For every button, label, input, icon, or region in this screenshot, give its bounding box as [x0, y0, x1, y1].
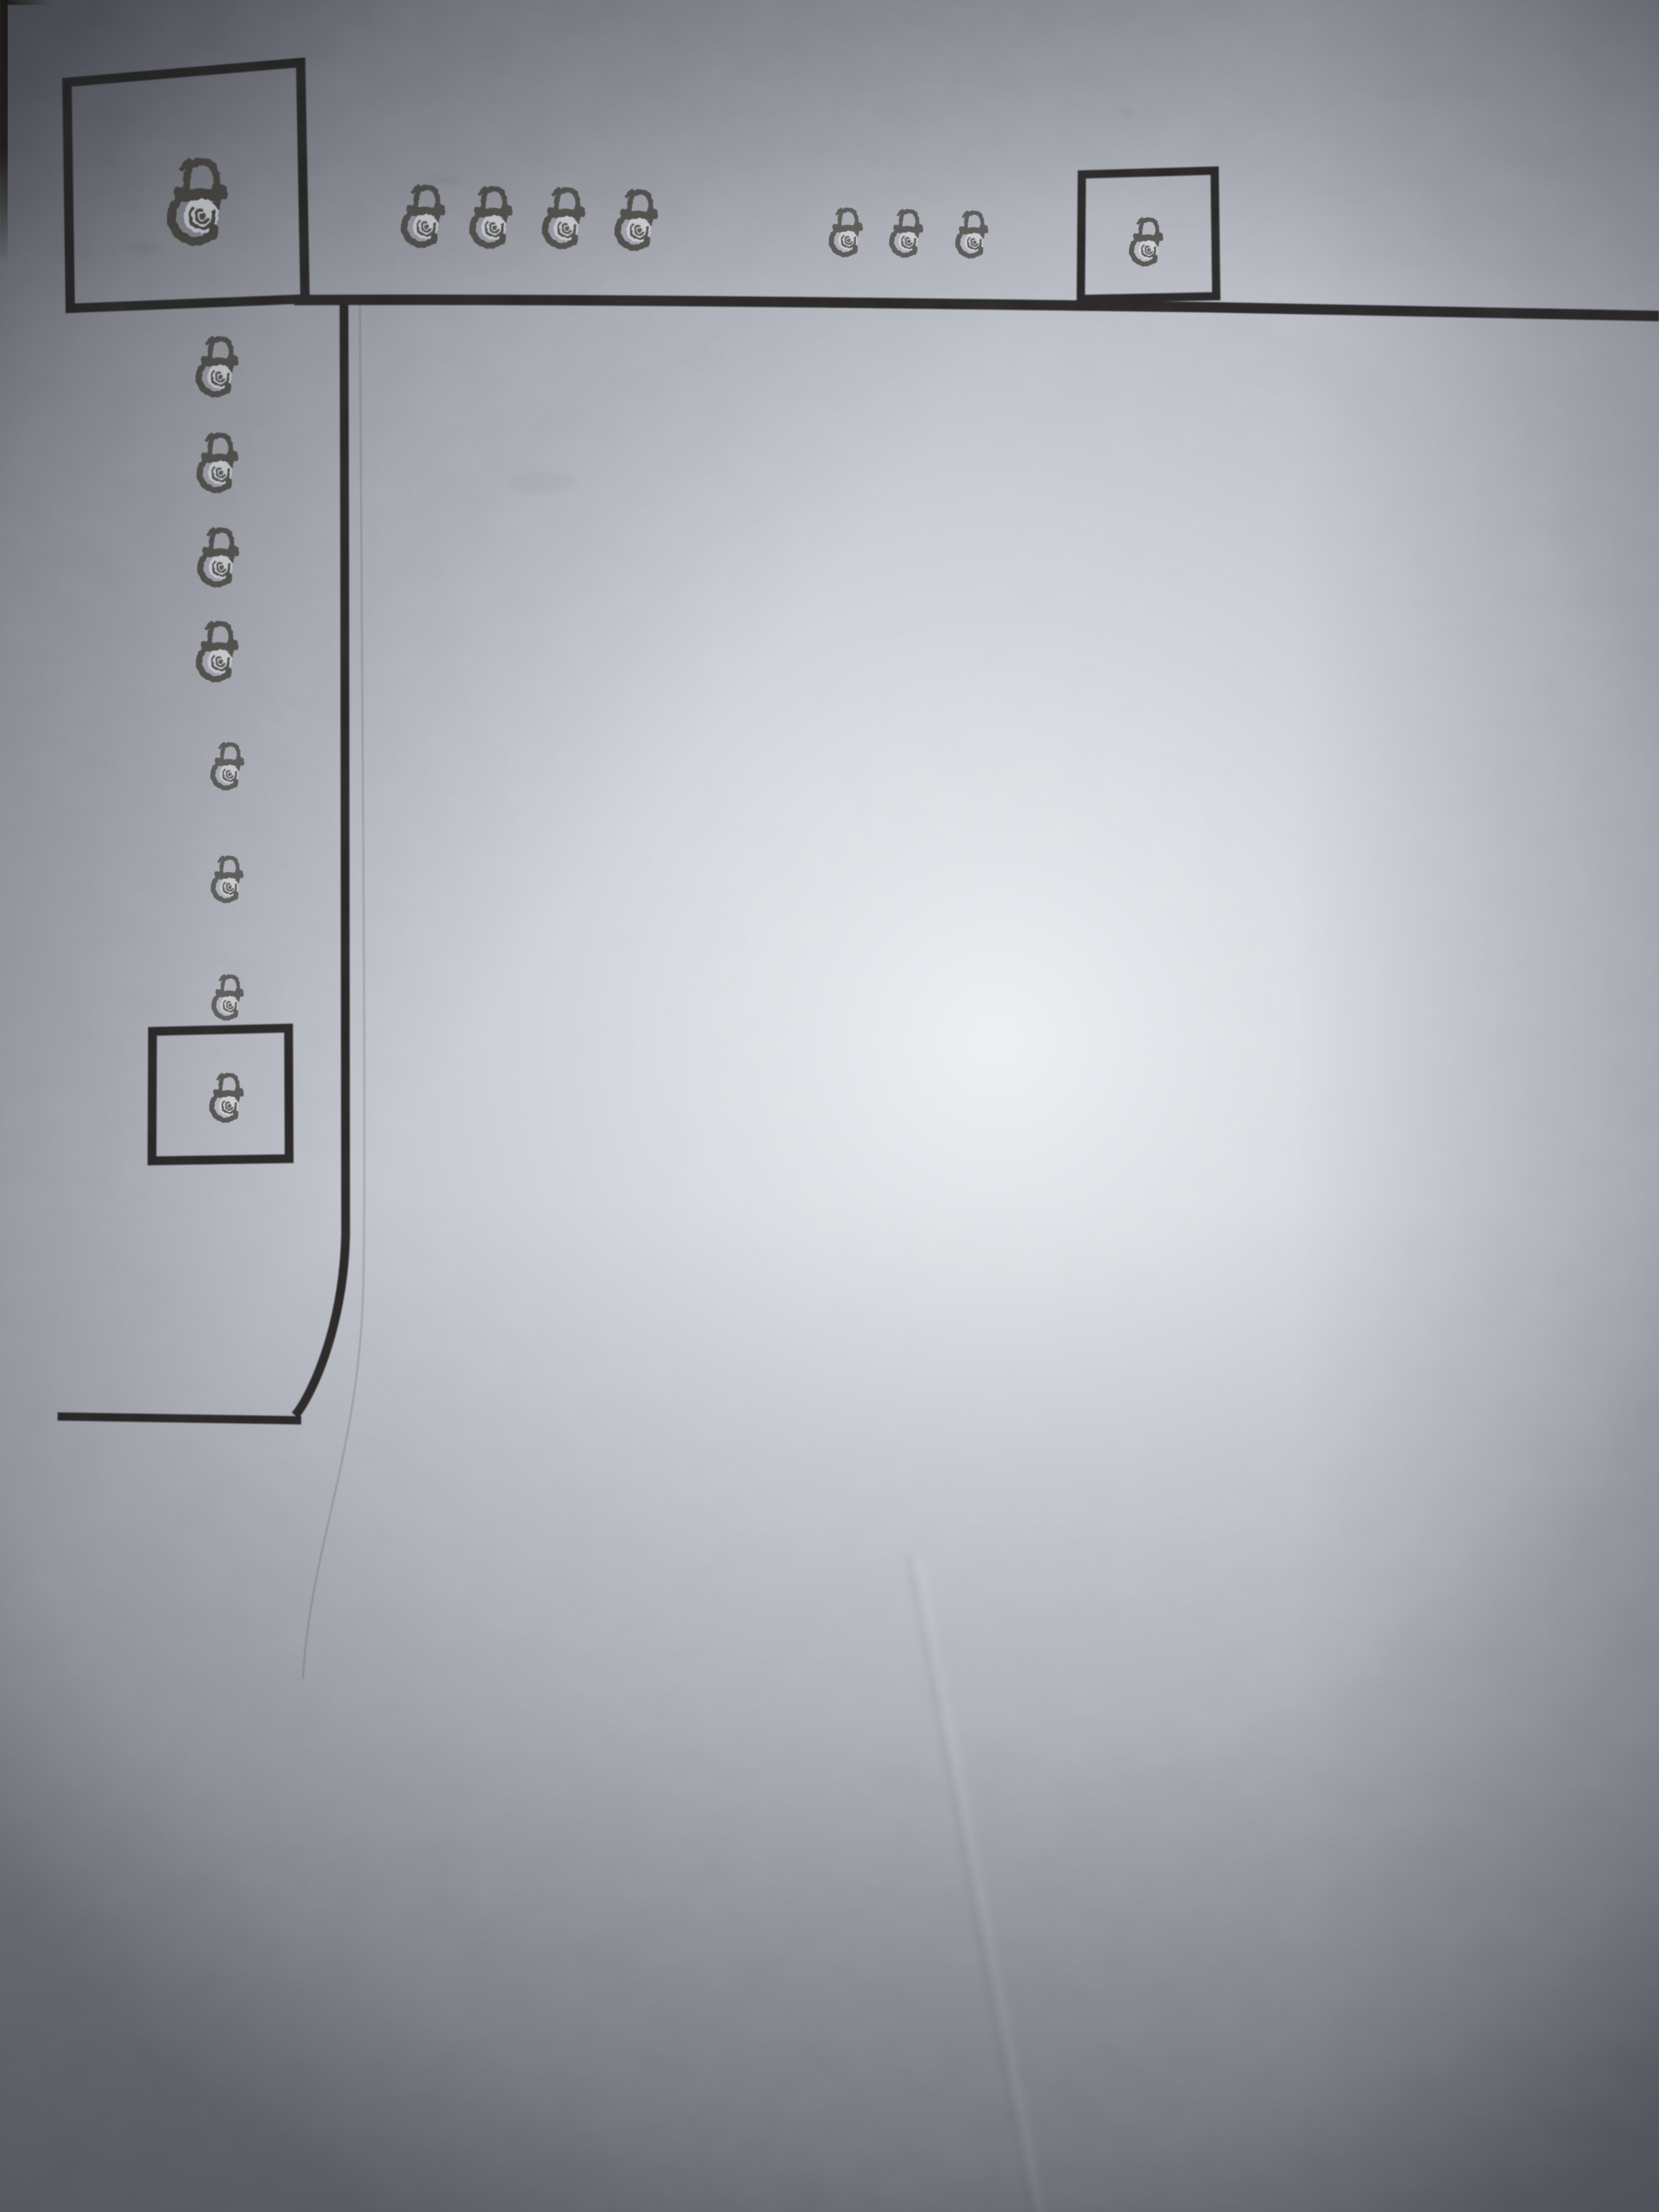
stamps-layer: [0, 0, 1659, 2212]
padlock-stamp-icon: [609, 176, 669, 260]
paper-edge-shadow: [0, 0, 8, 263]
padlock-stamp-icon: [190, 608, 249, 691]
padlock-stamp-icon: [190, 323, 249, 406]
padlock-stamp-icon: [885, 199, 932, 264]
padlock-stamp-icon: [159, 139, 243, 258]
padlock-stamp-icon: [207, 845, 252, 910]
padlock-stamp-icon: [1125, 207, 1172, 274]
paper-edge-shadow: [0, 0, 52, 5]
padlock-stamp-icon: [205, 1063, 253, 1130]
padlock-stamp-icon: [192, 515, 249, 596]
padlock-stamp-icon: [207, 964, 252, 1027]
padlock-stamp-icon: [537, 174, 596, 258]
photographed-worksheet-page: [0, 0, 1659, 2212]
padlock-stamp-icon: [951, 200, 997, 265]
padlock-stamp-icon: [395, 171, 456, 257]
padlock-stamp-icon: [191, 420, 250, 502]
padlock-stamp-icon: [464, 173, 524, 258]
padlock-stamp-icon: [206, 732, 253, 798]
padlock-stamp-icon: [823, 196, 872, 264]
